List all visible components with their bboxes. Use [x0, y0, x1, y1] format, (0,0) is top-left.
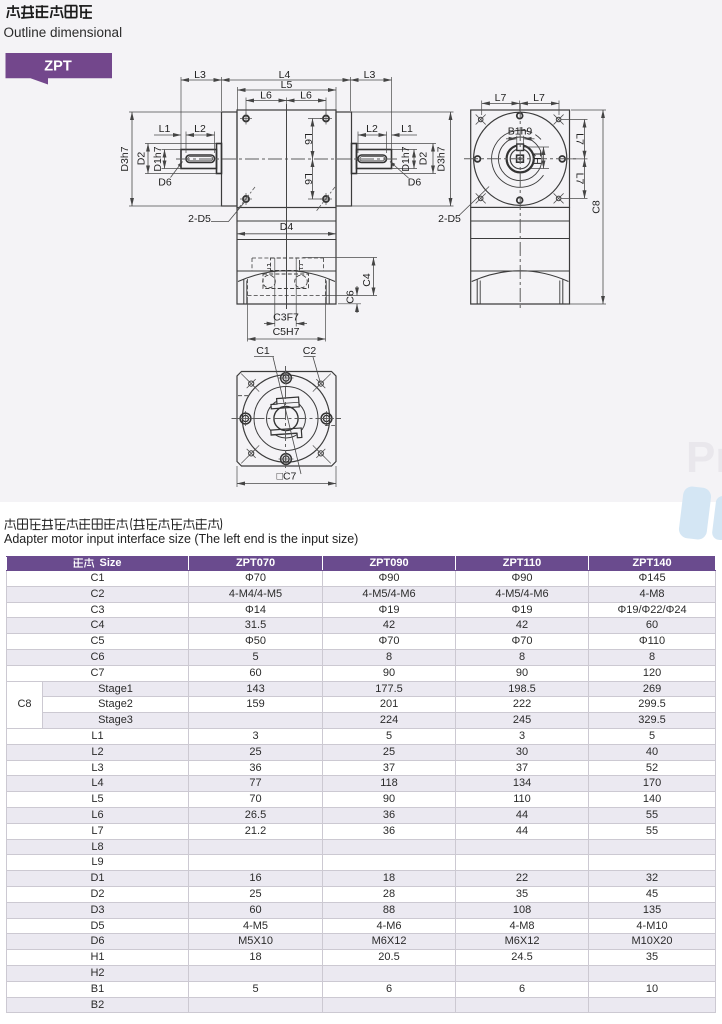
svg-text:L6: L6	[300, 90, 312, 102]
svg-text:2-D5: 2-D5	[438, 213, 461, 225]
svg-text:D3h7: D3h7	[436, 146, 448, 171]
svg-text:L7: L7	[574, 173, 586, 185]
svg-text:H1: H1	[532, 151, 544, 165]
svg-text:C8: C8	[591, 200, 603, 214]
svg-text:□C7: □C7	[277, 471, 297, 483]
svg-text:C6: C6	[345, 290, 357, 304]
svg-text:C4: C4	[361, 273, 373, 287]
svg-text:L5: L5	[281, 79, 293, 91]
svg-text:L7: L7	[574, 133, 586, 145]
svg-text:L6: L6	[260, 90, 272, 102]
svg-text:L7: L7	[533, 92, 545, 104]
svg-text:L1: L1	[401, 123, 413, 135]
svg-text:D4: D4	[280, 221, 294, 233]
svg-text:C5H7: C5H7	[273, 326, 300, 338]
svg-text:L7: L7	[495, 92, 507, 104]
svg-text:C3F7: C3F7	[273, 312, 299, 324]
svg-text:D1h7: D1h7	[400, 146, 412, 171]
svg-text:L3: L3	[364, 69, 376, 81]
svg-text:D2: D2	[418, 152, 430, 166]
svg-text:L2: L2	[366, 123, 378, 135]
svg-text:C2: C2	[303, 345, 317, 357]
svg-text:L6: L6	[302, 173, 314, 185]
svg-text:B1h9: B1h9	[508, 126, 533, 138]
svg-text:L6: L6	[302, 133, 314, 145]
svg-text:D6: D6	[408, 177, 422, 189]
